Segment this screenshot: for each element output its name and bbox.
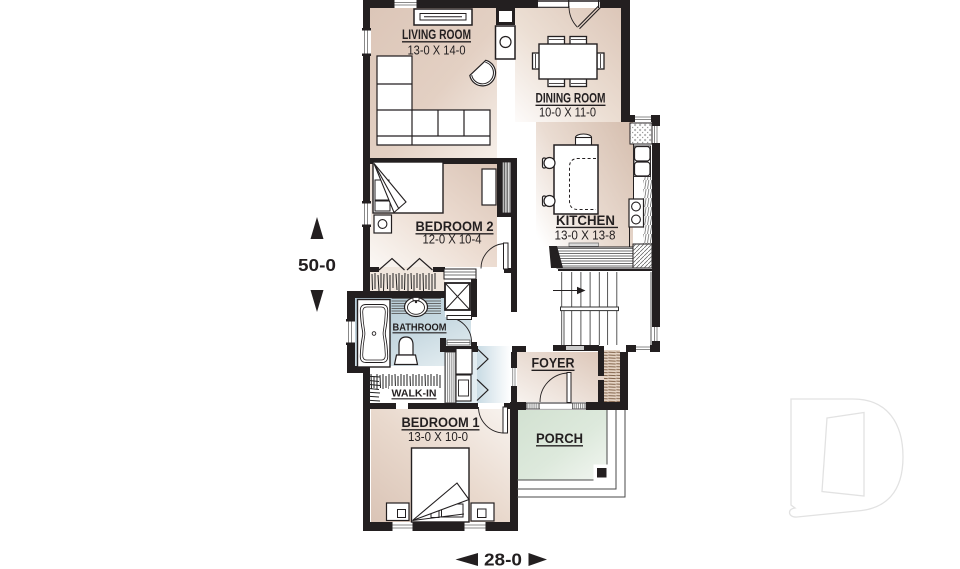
svg-text:13-0 X 13-8: 13-0 X 13-8	[555, 228, 616, 243]
svg-text:12-0 X 10-4: 12-0 X 10-4	[423, 232, 482, 247]
svg-text:FOYER: FOYER	[532, 356, 575, 371]
svg-text:BEDROOM 1: BEDROOM 1	[402, 415, 480, 430]
svg-text:DINING ROOM: DINING ROOM	[536, 91, 606, 106]
svg-text:28-0: 28-0	[484, 550, 522, 569]
svg-text:13-0 X 14-0: 13-0 X 14-0	[408, 43, 466, 58]
svg-text:WALK-IN: WALK-IN	[392, 388, 437, 400]
svg-text:PORCH: PORCH	[536, 431, 583, 446]
svg-text:13-0 X 10-0: 13-0 X 10-0	[408, 429, 468, 444]
svg-text:BATHROOM: BATHROOM	[393, 322, 447, 334]
svg-text:KITCHEN: KITCHEN	[556, 213, 615, 228]
svg-text:LIVING ROOM: LIVING ROOM	[402, 27, 471, 42]
svg-text:10-0 X 11-0: 10-0 X 11-0	[539, 105, 596, 120]
svg-text:50-0: 50-0	[298, 255, 336, 275]
